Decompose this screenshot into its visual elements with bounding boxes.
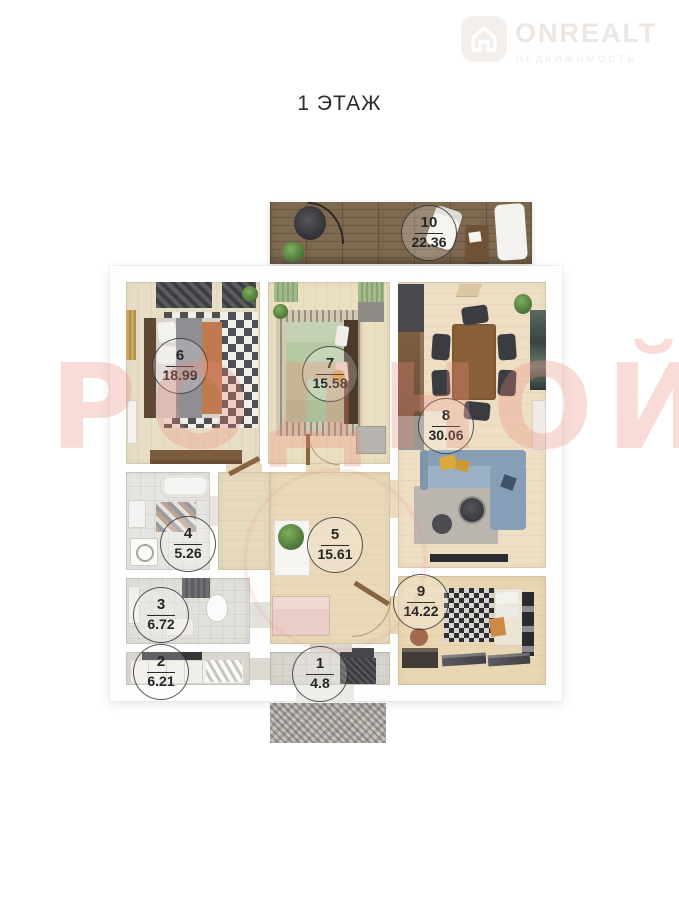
- radiator: [532, 400, 546, 450]
- plant: [273, 304, 288, 319]
- dresser: [402, 648, 438, 668]
- room-label-8: 8 30.06: [418, 398, 474, 454]
- room-label-5: 5 15.61: [307, 517, 363, 573]
- room-label-3: 3 6.72: [133, 587, 189, 643]
- dining-chair: [497, 333, 517, 360]
- room-area: 30.06: [428, 428, 463, 443]
- bathtub: [160, 474, 210, 498]
- dining-chair: [431, 370, 450, 397]
- tv-console: [430, 554, 508, 562]
- room-number: 9: [417, 584, 425, 601]
- room-area: 5.26: [174, 546, 201, 561]
- logo-tagline: НЕДВИЖИМОСТЬ: [516, 54, 637, 65]
- dining-chair: [431, 333, 451, 360]
- house-outline: 6 18.99 7 15.58 8 30.06 4 5.26 5 15.61 3…: [110, 266, 562, 701]
- dresser: [358, 302, 384, 322]
- room-label-7: 7 15.58: [302, 346, 358, 402]
- checkered-duvet-bed: [444, 588, 494, 642]
- room-number: 5: [331, 527, 339, 544]
- door-gap: [306, 464, 340, 472]
- nightstand: [356, 426, 386, 454]
- dining-chair: [461, 304, 489, 325]
- kitchen-counter: [398, 332, 424, 416]
- terrace-deck: 10 22.36: [270, 202, 532, 264]
- room-area: 14.22: [403, 604, 438, 619]
- door-leaf: [306, 434, 310, 465]
- curtain: [274, 282, 298, 302]
- floorplan-page: ONREALT НЕДВИЖИМОСТЬ 1 ЭТАЖ РОДНОЙ 10 22…: [0, 0, 679, 910]
- dining-chair: [497, 370, 516, 397]
- floor-title: 1 ЭТАЖ: [0, 92, 679, 116]
- curtain: [358, 282, 384, 302]
- pouf: [432, 514, 452, 534]
- room-label-10: 10 22.36: [401, 205, 457, 261]
- shower-mat: [182, 578, 210, 598]
- room-area: 15.61: [317, 547, 352, 562]
- room-area: 15.58: [312, 376, 347, 391]
- room-label-2: 2 6.21: [133, 644, 189, 700]
- room-area: 6.21: [147, 674, 174, 689]
- terrace-plant: [282, 242, 304, 262]
- logo-name: ONREALT: [515, 18, 658, 49]
- wooden-bench: [150, 450, 242, 464]
- room-area: 18.99: [162, 368, 197, 383]
- sofa-armrest: [420, 450, 428, 490]
- washer-drum: [136, 544, 154, 562]
- room-number: 4: [184, 526, 192, 543]
- room-number: 1: [316, 656, 324, 673]
- room-area: 6.72: [147, 617, 174, 632]
- room-label-1: 1 4.8: [292, 646, 348, 702]
- pouf: [410, 628, 428, 646]
- plant: [242, 286, 258, 302]
- kitchen-cabinet: [398, 284, 424, 332]
- room-number: 3: [157, 597, 165, 614]
- door-gap: [210, 496, 218, 526]
- hanging-clothes: [206, 660, 242, 682]
- window-blinds: [156, 282, 212, 308]
- storage-chest: [272, 596, 330, 636]
- desk-papers: [468, 231, 481, 243]
- pillow: [496, 591, 519, 605]
- toilet: [206, 594, 228, 622]
- room-number: 2: [157, 654, 165, 671]
- room-number: 10: [421, 215, 438, 232]
- wall-art: [530, 310, 546, 390]
- ceiling-light: [456, 284, 482, 296]
- bathroom-sink: [128, 500, 146, 528]
- room-number: 6: [176, 348, 184, 365]
- room-area: 4.8: [310, 676, 329, 691]
- dining-table: [452, 324, 496, 400]
- door-gap: [250, 658, 270, 680]
- sun-lounger: [494, 203, 528, 261]
- coffee-table: [460, 498, 484, 522]
- room-label-6: 6 18.99: [152, 338, 208, 394]
- wall-frames: [522, 592, 534, 656]
- door-gap: [390, 480, 398, 518]
- room-area: 22.36: [411, 235, 446, 250]
- hall-extension-floor: [218, 472, 270, 570]
- orange-pillow: [489, 617, 506, 637]
- room-label-4: 4 5.26: [160, 516, 216, 572]
- room-number: 7: [326, 356, 334, 373]
- plant: [278, 524, 304, 550]
- house-icon: [461, 16, 507, 62]
- curtain: [126, 310, 136, 360]
- area-rug: [414, 486, 498, 544]
- room-label-9: 9 14.22: [393, 574, 449, 630]
- porch-mat: [270, 703, 386, 743]
- hanging-chair-stand: [308, 202, 344, 244]
- radiator: [127, 400, 137, 444]
- room-number: 8: [442, 408, 450, 425]
- onrealt-logo: ONREALT НЕДВИЖИМОСТЬ: [461, 16, 661, 70]
- door-gap: [250, 602, 270, 628]
